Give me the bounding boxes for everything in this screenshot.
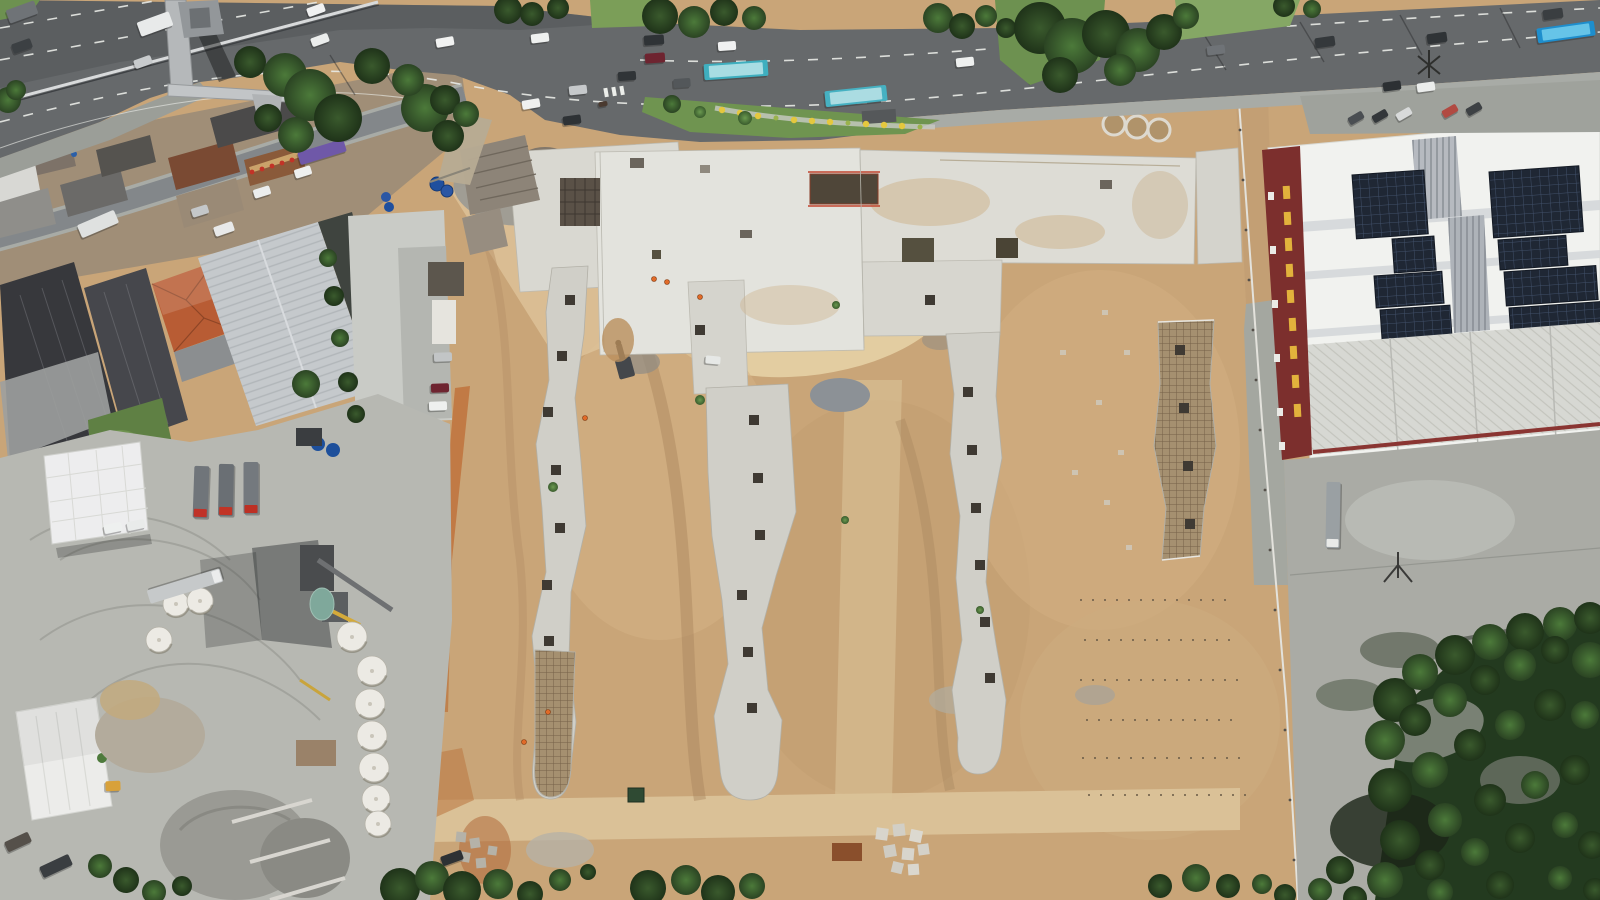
warehouse-building [1262, 118, 1600, 460]
footing-pad [985, 673, 995, 683]
car [616, 71, 636, 83]
footing-pad [1183, 461, 1193, 471]
slab-tongue [688, 280, 748, 394]
blue-tank [326, 443, 340, 457]
pump-truck [218, 464, 235, 518]
tree [976, 606, 984, 614]
silo-dome [337, 622, 367, 652]
tree [1435, 635, 1475, 675]
tree [678, 6, 710, 38]
tree [1216, 874, 1240, 898]
footing-pad [1185, 519, 1195, 529]
crate [296, 428, 322, 446]
water-pond [310, 588, 334, 620]
tree [841, 516, 849, 524]
flower-clump [791, 117, 797, 123]
silo-dome [359, 753, 389, 783]
tree [1560, 755, 1590, 785]
flower-clump [755, 113, 761, 119]
tree [1472, 624, 1508, 660]
tree [1504, 649, 1536, 681]
silo-dome [355, 689, 385, 719]
rust-plate [832, 843, 862, 861]
green-container [628, 788, 644, 802]
tree [1415, 850, 1445, 880]
tree [354, 48, 390, 84]
blue-water-tank [381, 192, 391, 202]
concrete-ring [1126, 116, 1148, 138]
footing-pad [743, 647, 753, 657]
footing-pad [555, 523, 565, 533]
car [567, 85, 587, 97]
gravel-pile [810, 378, 870, 412]
flower-clump [846, 121, 851, 126]
tree [1552, 812, 1578, 838]
red-gravel-bin [296, 740, 336, 766]
tree [331, 329, 349, 347]
solar-panel-array [1392, 236, 1436, 273]
footing-pad [737, 590, 747, 600]
footing-pad [971, 503, 981, 513]
material-stack [432, 300, 456, 344]
tree [1474, 784, 1506, 816]
tree [1402, 654, 1438, 690]
silo-dome [146, 627, 172, 653]
footing-pad [980, 617, 990, 627]
flower-clump [899, 123, 905, 129]
flower-clump [918, 125, 923, 130]
tree [949, 13, 975, 39]
footing-pad [551, 465, 561, 475]
blue-water-tank [384, 202, 394, 212]
tree [739, 873, 765, 899]
worker [583, 416, 588, 421]
tree [1173, 3, 1199, 29]
tree [319, 249, 337, 267]
solar-panel-array [1374, 271, 1444, 308]
tree [1428, 803, 1462, 837]
tree [1470, 665, 1500, 695]
slab-pit-opening [810, 174, 878, 204]
tree [1303, 0, 1321, 18]
parked-car [432, 352, 452, 363]
tree [1454, 729, 1486, 761]
pickup [704, 355, 721, 366]
wheel-loader [104, 781, 121, 793]
tree [1486, 871, 1514, 899]
tree [663, 95, 681, 113]
aerial-photo [0, 0, 1600, 900]
tree [520, 2, 544, 26]
stair-opening [996, 238, 1018, 258]
tree [694, 106, 706, 118]
silo-dome [357, 656, 387, 686]
footing-pad [753, 473, 763, 483]
car [954, 57, 974, 69]
tree [1326, 856, 1354, 884]
silo-dome [362, 785, 390, 813]
flower-clump [827, 119, 833, 125]
tree [1534, 689, 1566, 721]
tree [1148, 874, 1172, 898]
footing-pad [1179, 403, 1189, 413]
dirt-mound [602, 318, 634, 362]
tree [1380, 820, 1420, 860]
tree [1042, 57, 1078, 93]
pump-truck [244, 462, 261, 516]
blue-water-tank [441, 185, 453, 197]
tree [1412, 752, 1448, 788]
footing-pad [749, 415, 759, 425]
footing-pad [565, 295, 575, 305]
worker [652, 277, 657, 282]
tree [1505, 823, 1535, 853]
footing-pad [975, 560, 985, 570]
solar-panel-array [1352, 170, 1428, 239]
tree [254, 104, 282, 132]
tree [1367, 862, 1403, 898]
car [672, 78, 691, 90]
tree [453, 101, 479, 127]
tree [548, 482, 558, 492]
tree [113, 867, 139, 893]
footing-pad [695, 325, 705, 335]
worker [522, 740, 527, 745]
tree [6, 80, 26, 100]
tree [483, 869, 513, 899]
solar-panel-array [1498, 235, 1568, 270]
tree [738, 111, 752, 125]
tree [172, 876, 192, 896]
flower-clump [719, 107, 725, 113]
footing-pad [1175, 345, 1185, 355]
tree [1368, 768, 1412, 812]
gravel-pile [260, 818, 350, 898]
silo-dome [187, 588, 213, 614]
solar-panel-array [1504, 266, 1598, 306]
tire-track-band [835, 380, 902, 800]
tree [314, 94, 362, 142]
tree [975, 5, 997, 27]
footing-pad [542, 580, 552, 590]
footing-pad [963, 387, 973, 397]
tree [1521, 771, 1549, 799]
car [716, 41, 736, 53]
tree [278, 117, 314, 153]
parked-car [429, 383, 449, 394]
footing-pad [557, 351, 567, 361]
footing-pad [755, 530, 765, 540]
tree [1252, 874, 1272, 894]
worker [546, 710, 551, 715]
tree [234, 46, 266, 78]
flower-clump [881, 122, 887, 128]
tree [1104, 54, 1136, 86]
tree [338, 372, 358, 392]
solar-panel-array [1489, 166, 1583, 238]
tree [1433, 683, 1467, 717]
tree [671, 865, 701, 895]
tree [1506, 613, 1544, 651]
footing-pad [747, 703, 757, 713]
tree [1495, 710, 1525, 740]
footing-pad [544, 636, 554, 646]
tree [1541, 636, 1569, 664]
pump-truck [193, 466, 211, 520]
tree [1543, 607, 1577, 641]
tree [1548, 866, 1572, 890]
tree [1399, 704, 1431, 736]
tree [1571, 701, 1599, 729]
tree [549, 869, 571, 891]
concrete-ring [1148, 119, 1170, 141]
tree [88, 854, 112, 878]
parked-car [427, 401, 447, 412]
tree [347, 405, 365, 423]
flower-clump [863, 121, 869, 127]
worker [665, 280, 670, 285]
worker [698, 295, 703, 300]
tree [832, 301, 840, 309]
flower-clump [774, 116, 779, 121]
suv [642, 34, 664, 47]
sand-pile [100, 680, 160, 720]
silo-dome [365, 811, 391, 837]
footing-pad [967, 445, 977, 455]
tree [392, 64, 424, 96]
flower-clump [809, 118, 815, 124]
footing-pad [925, 295, 935, 305]
tree [324, 286, 344, 306]
aerial-photo-canvas [0, 0, 1600, 900]
semi-truck [1325, 482, 1342, 550]
silo-dome [357, 721, 387, 751]
tree [695, 395, 705, 405]
tree [1182, 864, 1210, 892]
tree [742, 6, 766, 30]
slab-fragment [1196, 148, 1242, 264]
tree [292, 370, 320, 398]
car [643, 52, 665, 65]
tree [1461, 838, 1489, 866]
tree [580, 864, 596, 880]
footing-pad [543, 407, 553, 417]
stair-opening [902, 238, 934, 262]
tree [923, 3, 953, 33]
tree [1365, 720, 1405, 760]
debris-pile [428, 262, 464, 296]
tree [996, 18, 1016, 38]
